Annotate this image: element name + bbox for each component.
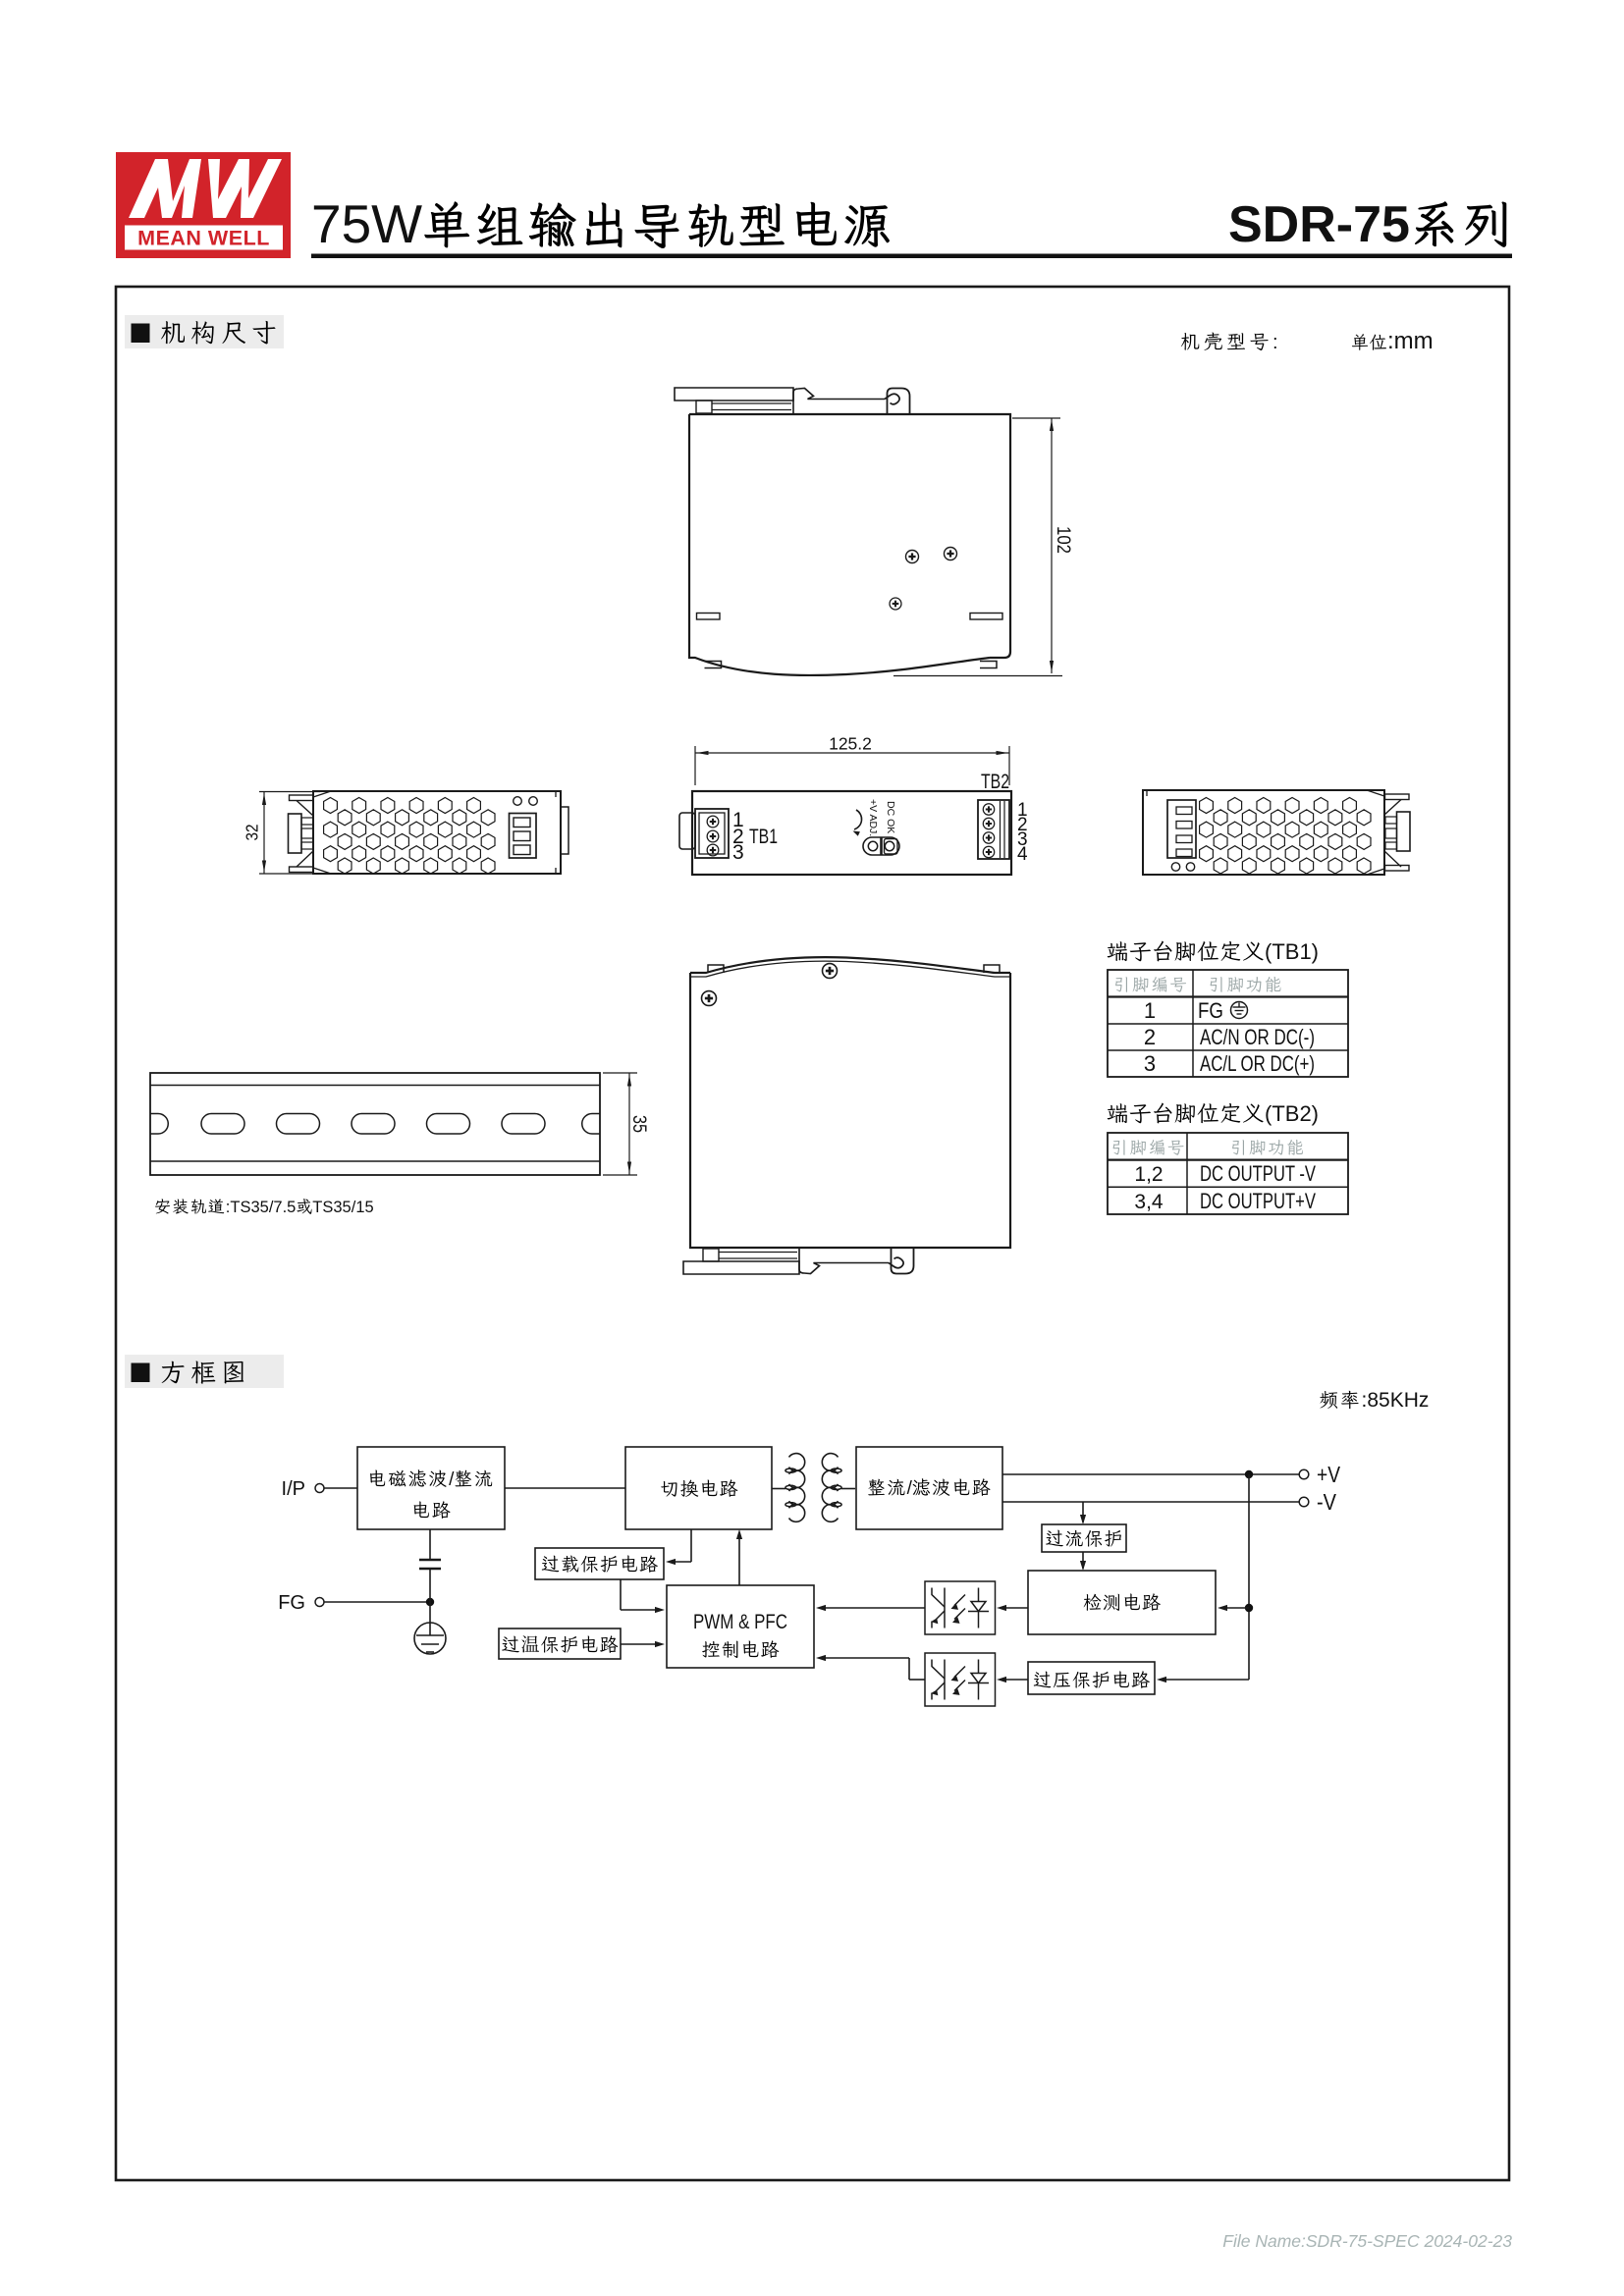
svg-text:/: / — [449, 1469, 455, 1490]
svg-text:DC OUTPUT+V: DC OUTPUT+V — [1200, 1189, 1316, 1213]
svg-text:I/P: I/P — [282, 1478, 305, 1500]
svg-text:3: 3 — [1144, 1051, 1156, 1076]
svg-text:4: 4 — [1017, 844, 1028, 865]
svg-text:(TB2): (TB2) — [1265, 1101, 1319, 1126]
svg-text:(TB1): (TB1) — [1265, 939, 1319, 964]
svg-text::TS35/7.5: :TS35/7.5 — [226, 1199, 297, 1216]
svg-text::mm: :mm — [1387, 328, 1434, 354]
svg-text:-V: -V — [1317, 1489, 1337, 1515]
svg-text:125.2: 125.2 — [829, 734, 872, 754]
svg-text:MEAN WELL: MEAN WELL — [137, 227, 270, 250]
svg-text:PWM & PFC: PWM & PFC — [693, 1611, 787, 1633]
svg-text:35: 35 — [628, 1115, 649, 1133]
svg-text:File Name:SDR-75-SPEC 2024-0: File Name:SDR-75-SPEC 2024-02-23 — [1222, 2231, 1512, 2251]
svg-text:TB2: TB2 — [981, 771, 1009, 793]
svg-text:75W: 75W — [311, 193, 422, 254]
svg-text:FG: FG — [278, 1592, 305, 1614]
svg-text:102: 102 — [1053, 526, 1074, 554]
svg-text:DC OUTPUT -V: DC OUTPUT -V — [1200, 1161, 1316, 1186]
svg-text::85KHz: :85KHz — [1362, 1389, 1430, 1412]
svg-text:AC/N OR DC(-): AC/N OR DC(-) — [1200, 1025, 1315, 1049]
svg-text:SDR-75: SDR-75 — [1228, 196, 1410, 253]
svg-text:DC OK: DC OK — [885, 801, 896, 833]
svg-text:3: 3 — [732, 841, 744, 864]
svg-text:32: 32 — [243, 825, 262, 841]
svg-text:FG: FG — [1198, 998, 1223, 1023]
svg-text:2: 2 — [1144, 1025, 1156, 1049]
svg-text:+V ADJ.: +V ADJ. — [867, 799, 879, 836]
svg-text:TB1: TB1 — [749, 826, 778, 848]
svg-text:+V: +V — [1317, 1462, 1341, 1487]
svg-text:3,4: 3,4 — [1134, 1191, 1164, 1213]
svg-text:/: / — [907, 1478, 913, 1499]
svg-text:1,2: 1,2 — [1134, 1163, 1163, 1186]
svg-text:1: 1 — [1144, 998, 1156, 1023]
svg-text:AC/L OR DC(+): AC/L OR DC(+) — [1200, 1051, 1315, 1076]
svg-text:TS35/15: TS35/15 — [312, 1199, 373, 1216]
svg-text::: : — [1272, 332, 1278, 353]
